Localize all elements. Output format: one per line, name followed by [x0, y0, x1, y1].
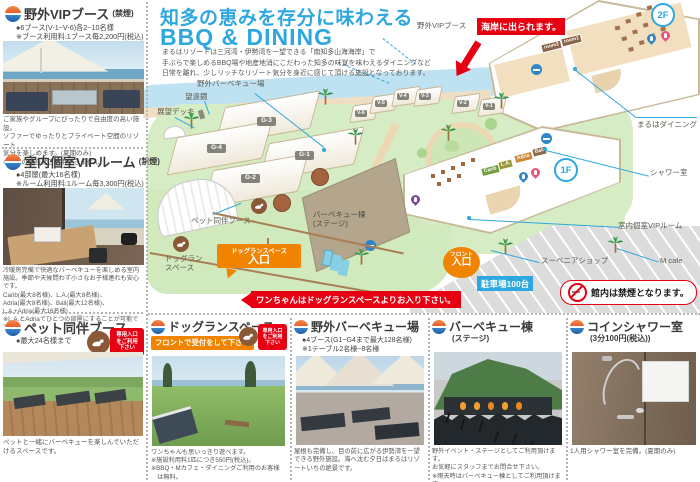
map-label-deck: 展望デッキ [157, 107, 195, 116]
section-vip-room-header: 室内個室VIPルーム (禁煙) [5, 152, 160, 171]
section-note: (禁煙) [112, 8, 133, 19]
section-title: 野外バーベキュー場 [311, 318, 419, 335]
palm-icon [493, 92, 510, 110]
dog-icon [173, 236, 189, 252]
bbq-hall-photo [434, 352, 562, 445]
resort-logo-icon [5, 6, 21, 22]
front-entrance-callout: フロント 入口 [443, 247, 480, 278]
map-label-bbq-field: 野外バーベキュー場 [197, 79, 265, 88]
connector-dot [467, 216, 471, 220]
booth-chip-v3: V-3 [419, 93, 431, 100]
connector-dot [322, 148, 326, 152]
map-label-vip-room: 室内個室VIPルーム [618, 221, 682, 230]
booth-chip-g4: G-4 [207, 144, 226, 153]
map-label-mcafe: M cafe [660, 256, 683, 265]
dogrun-entrance-callout: ドッグランスペース 入口 [217, 244, 301, 268]
dog-notice: ワンちゃんはドッグランスペースよりお入り下さい。 [241, 291, 461, 308]
resort-logo-icon [151, 320, 165, 334]
section-title: 野外VIPブース [24, 4, 109, 23]
divider [566, 318, 568, 480]
bbq-hall-caption: 野外イベント・ステージとしてご利用頂けます。 お気軽にスタッフまでお問合せ下さい… [432, 448, 562, 482]
no-smoking-icon [568, 283, 587, 302]
divider [290, 318, 292, 480]
resort-logo-icon [5, 154, 21, 170]
floor-badge-1f: 1F [554, 158, 578, 182]
parking-label: 駐車場100台 [477, 276, 533, 291]
beach-note: 海岸に出られます。 [477, 18, 565, 35]
smoking-area-icon [531, 64, 542, 75]
map-label-telescope: 望遠鏡 [185, 92, 208, 101]
section-title: 室内個室VIPルーム [24, 152, 136, 171]
dog-icon [239, 327, 258, 346]
dog-run-photo [152, 356, 285, 446]
vip-booth-photo [3, 41, 144, 114]
booth-chip-g2: G-2 [241, 174, 260, 183]
booth-chip-v2: V-2 [457, 100, 469, 107]
map-label-dining: まるはダイニング [637, 117, 697, 129]
resort-logo-icon [570, 320, 584, 334]
umbrella [273, 194, 291, 212]
vip-room-photo [3, 188, 144, 265]
vip-room-bullet1: ●4部屋(最大16名様) [16, 170, 80, 179]
bbq-hall-note: (ステージ) [452, 333, 489, 344]
shower-caption: 1人用シャワー室を完備。(夏期のみ) [570, 448, 698, 457]
shower-photo [572, 352, 696, 445]
dog-icon [87, 331, 110, 354]
section-vip-booth-header: 野外VIPブース (禁煙) [5, 4, 134, 23]
pet-booth-bullet1: ●最大24名様まで [16, 336, 71, 345]
bbq-field-caption: 屋根も完備し、目の前に広がる伊勢湾を一望できる野外施設。海へ沈む夕日はまるはリゾ… [294, 448, 424, 473]
booth-chip-g3: G-3 [257, 117, 276, 126]
section-bbq-field-header: 野外バーベキュー場 [294, 318, 419, 335]
bbq-field-photo [296, 356, 424, 445]
notice-arrow-icon [241, 293, 251, 307]
page-title-line2: BBQ & DINING [160, 24, 333, 51]
pet-booth-photo [3, 352, 143, 436]
map-label-bbq-hall: バーベキュー棟 (ステージ) [313, 210, 366, 228]
vip-booth-bullet1: ●6ブース(V-1~V-6)各2~10名様 [16, 23, 114, 32]
divider [148, 313, 700, 315]
map-label-souvenir: スーベニアショップ [541, 256, 608, 265]
brochure-page: room2 room1 Carib L.A. Adria Bali G-3 G-… [0, 0, 700, 482]
map-label-outdoor-vip: 野外VIPブース [417, 21, 466, 30]
vip-room-bullet2: ※ルーム利用料:1ルーム毎3,300円(税込) [16, 179, 144, 188]
bbq-field-bullet1: ●4ブース(G1~G4まで最大128名様) [302, 336, 412, 345]
shower-note: (3分100円(税込)) [590, 333, 650, 344]
divider [2, 147, 143, 149]
palm-icon [607, 236, 624, 254]
section-note: (禁煙) [139, 156, 160, 167]
intro-paragraph: まるはリゾートは三河湾・伊勢湾を一望できる「南知多山海海岸」で 手ぶらで楽しめる… [162, 48, 431, 80]
palm-icon [347, 128, 364, 146]
palm-icon [440, 124, 457, 142]
booth-chip-v5: V-5 [375, 100, 387, 107]
no-smoking-note: 館内は禁煙となります。 [560, 280, 697, 305]
resort-logo-icon [5, 320, 21, 336]
divider [146, 2, 148, 480]
dogrun-entrance-badge: 専用入口 をご利用 下さい [258, 324, 287, 350]
divider [428, 318, 430, 480]
booth-chip-v6: V-6 [355, 110, 367, 117]
no-smoking-text: 館内は禁煙となります。 [591, 286, 689, 299]
dog-run-caption: ワンちゃんも思いっきり遊べます。 ※施設利用料1匹につき550円(税込)。 ※B… [151, 449, 286, 482]
resort-logo-icon [432, 320, 446, 334]
palm-icon [317, 88, 334, 106]
floor-badge-2f: 2F [651, 3, 675, 27]
map-label-pet-booth: ペット同伴ブース [191, 216, 251, 225]
map-label-dog-run: ドッグラン スペース [165, 254, 203, 272]
map-label-shower: シャワー室 [650, 168, 688, 177]
umbrella [311, 168, 329, 186]
connector-dot [573, 67, 577, 71]
resort-logo-icon [294, 320, 308, 334]
booth-chip-v4: V-4 [397, 93, 409, 100]
connector-dot [543, 147, 547, 151]
smoking-area-icon [541, 133, 552, 144]
front-big: 入口 [443, 258, 480, 268]
pet-booth-caption: ペットと一緒にバーベキューを楽しんでいただけるスペースです。 [3, 439, 144, 456]
dog-notice-text: ワンちゃんはドッグランスペースよりお入り下さい。 [251, 291, 461, 308]
bbq-field-bullet2: ※1テーブル2名様~8名様 [302, 345, 379, 354]
booth-chip-g1: G-1 [295, 151, 314, 160]
indoor-chairs [431, 174, 435, 178]
dog-icon [251, 198, 267, 214]
vip-booth-bullet2: ※ブース利用料:1ブース毎2,200円(税込) [16, 32, 144, 41]
divider [2, 312, 143, 314]
palm-icon [353, 248, 370, 266]
section-pet-booth-header: ペット同伴ブース [5, 318, 127, 337]
dogrun-entrance-big: 入口 [219, 255, 299, 266]
indoor-vip-building-1f [403, 126, 621, 234]
